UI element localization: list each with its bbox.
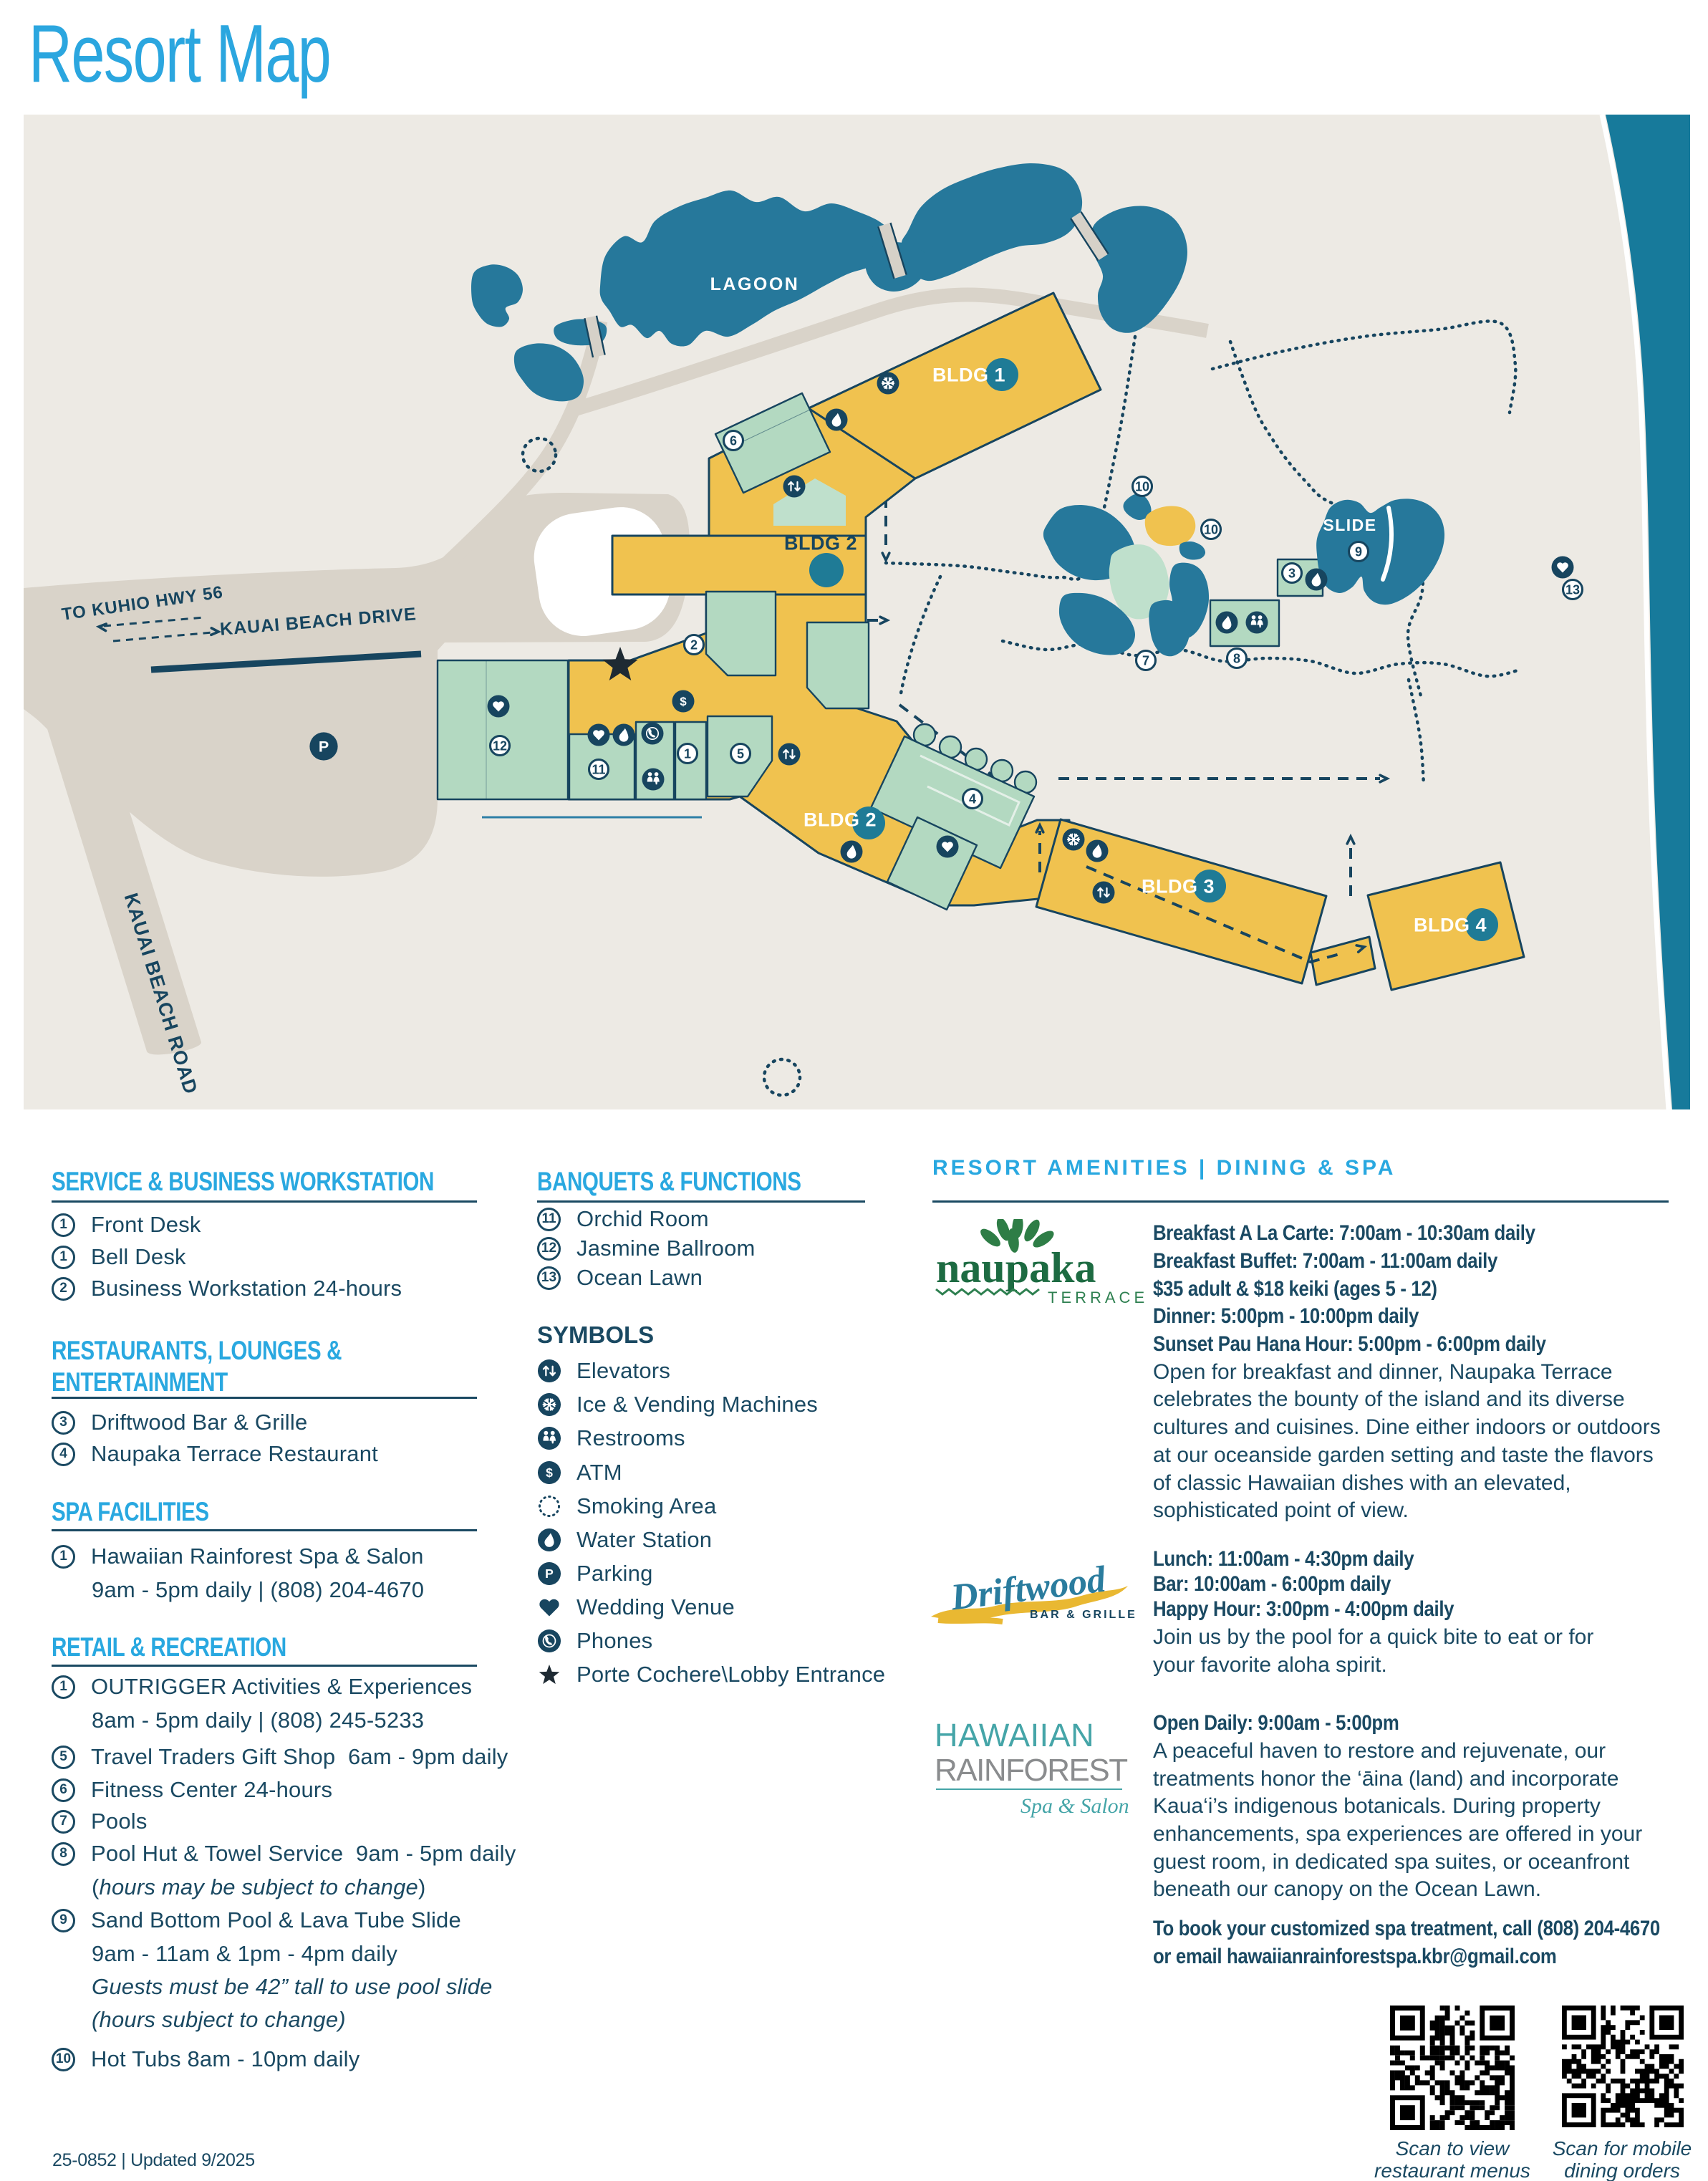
svg-text:11: 11 xyxy=(592,762,605,776)
svg-text:10: 10 xyxy=(1135,479,1149,494)
svg-text:TERRACE: TERRACE xyxy=(1048,1289,1148,1306)
svg-text:BLDG 2: BLDG 2 xyxy=(784,533,857,554)
svg-text:BLDG 1: BLDG 1 xyxy=(932,365,1005,386)
svg-text:8: 8 xyxy=(1233,651,1240,665)
svg-text:BLDG 3: BLDG 3 xyxy=(1142,876,1215,897)
svg-text:P: P xyxy=(545,1566,554,1581)
svg-text:HAWAIIAN: HAWAIIAN xyxy=(935,1718,1094,1753)
svg-text:RAINFOREST: RAINFOREST xyxy=(935,1753,1127,1788)
svg-text:9: 9 xyxy=(1355,544,1362,559)
svg-text:6: 6 xyxy=(730,433,737,448)
svg-text:1: 1 xyxy=(684,746,691,761)
svg-text:Spa & Salon: Spa & Salon xyxy=(1021,1794,1129,1818)
svg-text:LAGOON: LAGOON xyxy=(710,274,800,294)
svg-text:BLDG 4: BLDG 4 xyxy=(1414,915,1487,936)
svg-text:$: $ xyxy=(680,695,687,708)
svg-text:13: 13 xyxy=(1565,582,1580,597)
svg-text:2: 2 xyxy=(690,637,698,652)
svg-text:BLDG 2: BLDG 2 xyxy=(804,809,877,831)
svg-text:7: 7 xyxy=(1142,653,1149,668)
svg-text:SLIDE: SLIDE xyxy=(1323,516,1376,534)
svg-text:12: 12 xyxy=(493,738,507,753)
svg-text:P: P xyxy=(319,738,329,756)
svg-text:10: 10 xyxy=(1204,522,1218,536)
svg-text:3: 3 xyxy=(1288,566,1296,580)
svg-text:5: 5 xyxy=(737,746,744,761)
svg-text:4: 4 xyxy=(969,791,976,806)
svg-text:BAR & GRILLE: BAR & GRILLE xyxy=(1030,1609,1137,1621)
svg-text:$: $ xyxy=(546,1465,553,1480)
svg-text:naupaka: naupaka xyxy=(936,1244,1096,1291)
